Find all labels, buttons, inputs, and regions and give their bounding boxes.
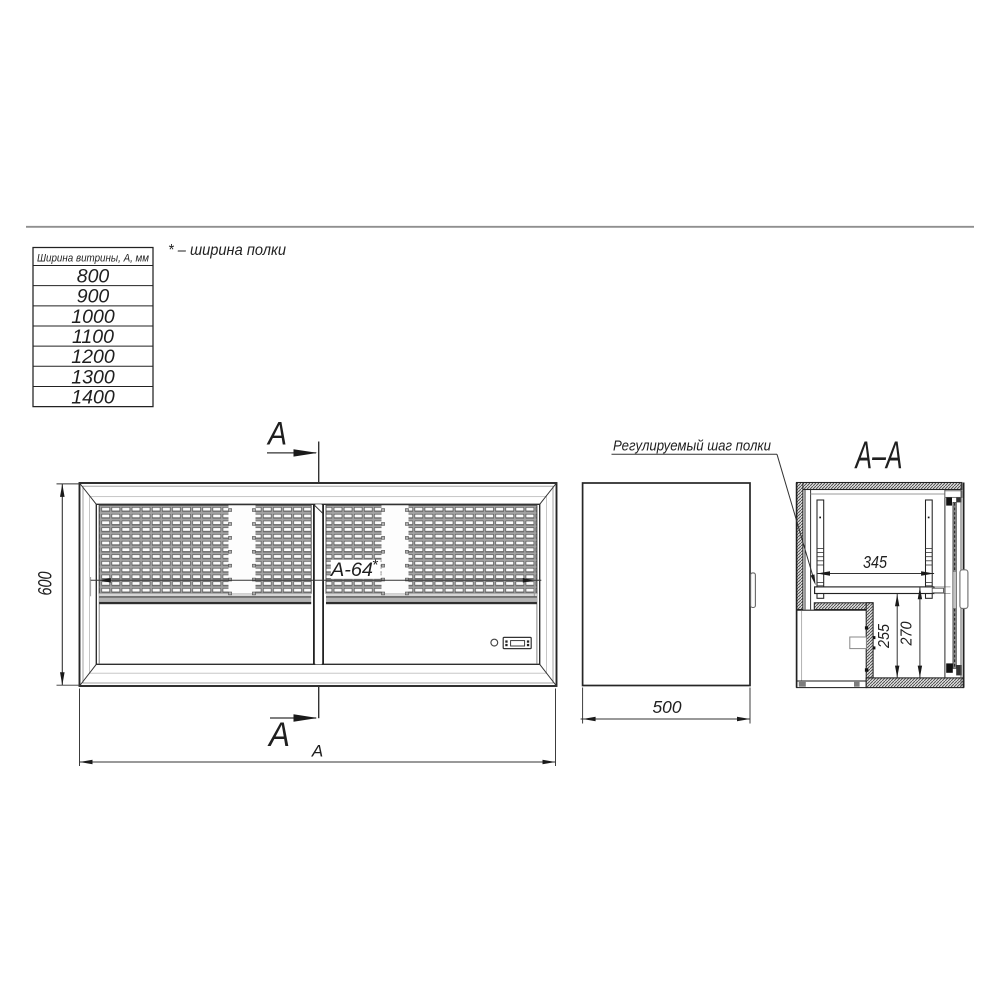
svg-text:* – ширина полки: * – ширина полки (168, 242, 286, 259)
svg-text:255: 255 (876, 624, 893, 649)
svg-text:Регулируемый шаг полки: Регулируемый шаг полки (613, 437, 771, 454)
svg-text:A–A: A–A (854, 434, 902, 477)
svg-text:A: A (311, 742, 323, 761)
svg-text:A: A (267, 716, 290, 754)
svg-text:270: 270 (898, 621, 915, 646)
svg-text:1000: 1000 (71, 306, 115, 328)
svg-text:1200: 1200 (71, 346, 115, 368)
svg-text:900: 900 (77, 286, 110, 308)
svg-text:A-64: A-64 (330, 560, 373, 581)
svg-text:800: 800 (77, 266, 110, 288)
svg-text:A: A (266, 415, 287, 451)
svg-text:345: 345 (863, 552, 887, 572)
svg-text:1300: 1300 (71, 366, 115, 388)
svg-text:600: 600 (36, 571, 57, 595)
svg-text:1100: 1100 (72, 326, 114, 348)
svg-text:Ширина витрины, А, мм: Ширина витрины, А, мм (37, 252, 150, 264)
svg-text:500: 500 (653, 697, 682, 717)
svg-text:1400: 1400 (71, 387, 115, 409)
